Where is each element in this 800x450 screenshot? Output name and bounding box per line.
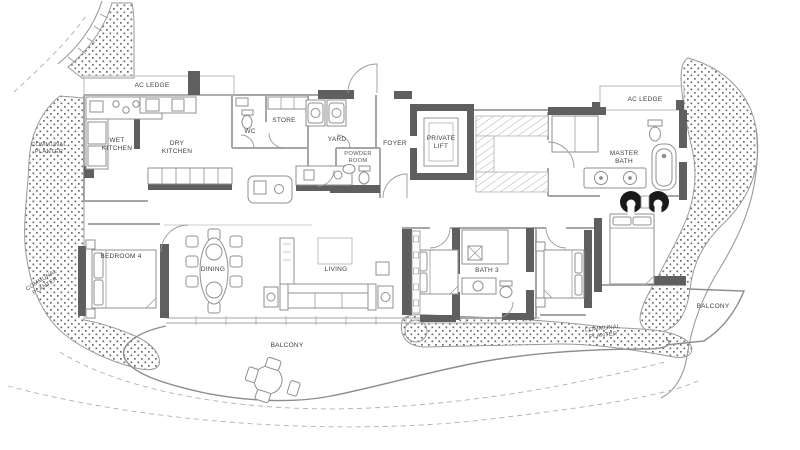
bed-icon-bedroom-2 bbox=[536, 242, 584, 307]
floor-plan-drawing bbox=[0, 0, 800, 450]
basin-icon bbox=[343, 165, 355, 174]
room-label-wet-kitchen: WET KITCHEN bbox=[102, 137, 132, 153]
vanity-icon bbox=[462, 278, 496, 294]
room-label-living: LIVING bbox=[325, 266, 348, 274]
bed-icon-bedroom-4 bbox=[86, 240, 156, 318]
room-label-ac-ledge-right: AC LEDGE bbox=[628, 96, 663, 104]
room-label-dry-kitchen: DRY KITCHEN bbox=[162, 140, 192, 156]
island-counter bbox=[248, 176, 292, 203]
room-label-store: STORE bbox=[272, 117, 296, 125]
bed-icon-master bbox=[610, 214, 654, 284]
coffee-table-icon bbox=[318, 238, 352, 264]
toilet-icon bbox=[500, 287, 512, 298]
wardrobe-icon bbox=[476, 116, 548, 192]
toilet-icon bbox=[650, 127, 661, 141]
area-label-balcony-right: BALCONY bbox=[697, 303, 730, 311]
room-label-bedroom-4: BEDROOM 4 bbox=[100, 253, 141, 261]
room-label-wc: WC bbox=[244, 128, 255, 136]
room-label-yard: YARD bbox=[328, 136, 347, 144]
toilet-icon bbox=[242, 116, 252, 129]
washer-dryer-icon bbox=[306, 100, 346, 126]
bed-icon-bedroom-3 bbox=[418, 250, 458, 294]
store-shelf bbox=[268, 97, 308, 109]
room-label-bath-3: BATH 3 bbox=[475, 267, 499, 275]
room-label-ac-ledge-left: AC LEDGE bbox=[135, 82, 170, 90]
area-label-planter-top-left: COMMUNAL PLANTER bbox=[31, 142, 67, 156]
room-label-private-lift: PRIVATE LIFT bbox=[427, 135, 456, 151]
bath-3-fixtures bbox=[462, 230, 512, 298]
room-label-foyer: FOYER bbox=[383, 140, 407, 148]
balcony-table-set bbox=[240, 352, 305, 411]
sofa-icon bbox=[288, 284, 368, 293]
tv-console-icon bbox=[280, 238, 294, 286]
planter-areas bbox=[25, 3, 758, 370]
room-label-master-bath: MASTER BATH bbox=[610, 150, 639, 166]
area-label-balcony-main: BALCONY bbox=[271, 342, 304, 350]
floor-plan: AC LEDGE WET KITCHEN DRY KITCHEN WC STOR… bbox=[0, 0, 800, 450]
room-label-dining: DINING bbox=[201, 266, 225, 274]
room-label-powder-room: POWDER ROOM bbox=[344, 151, 372, 165]
armchair-icons bbox=[620, 191, 669, 215]
